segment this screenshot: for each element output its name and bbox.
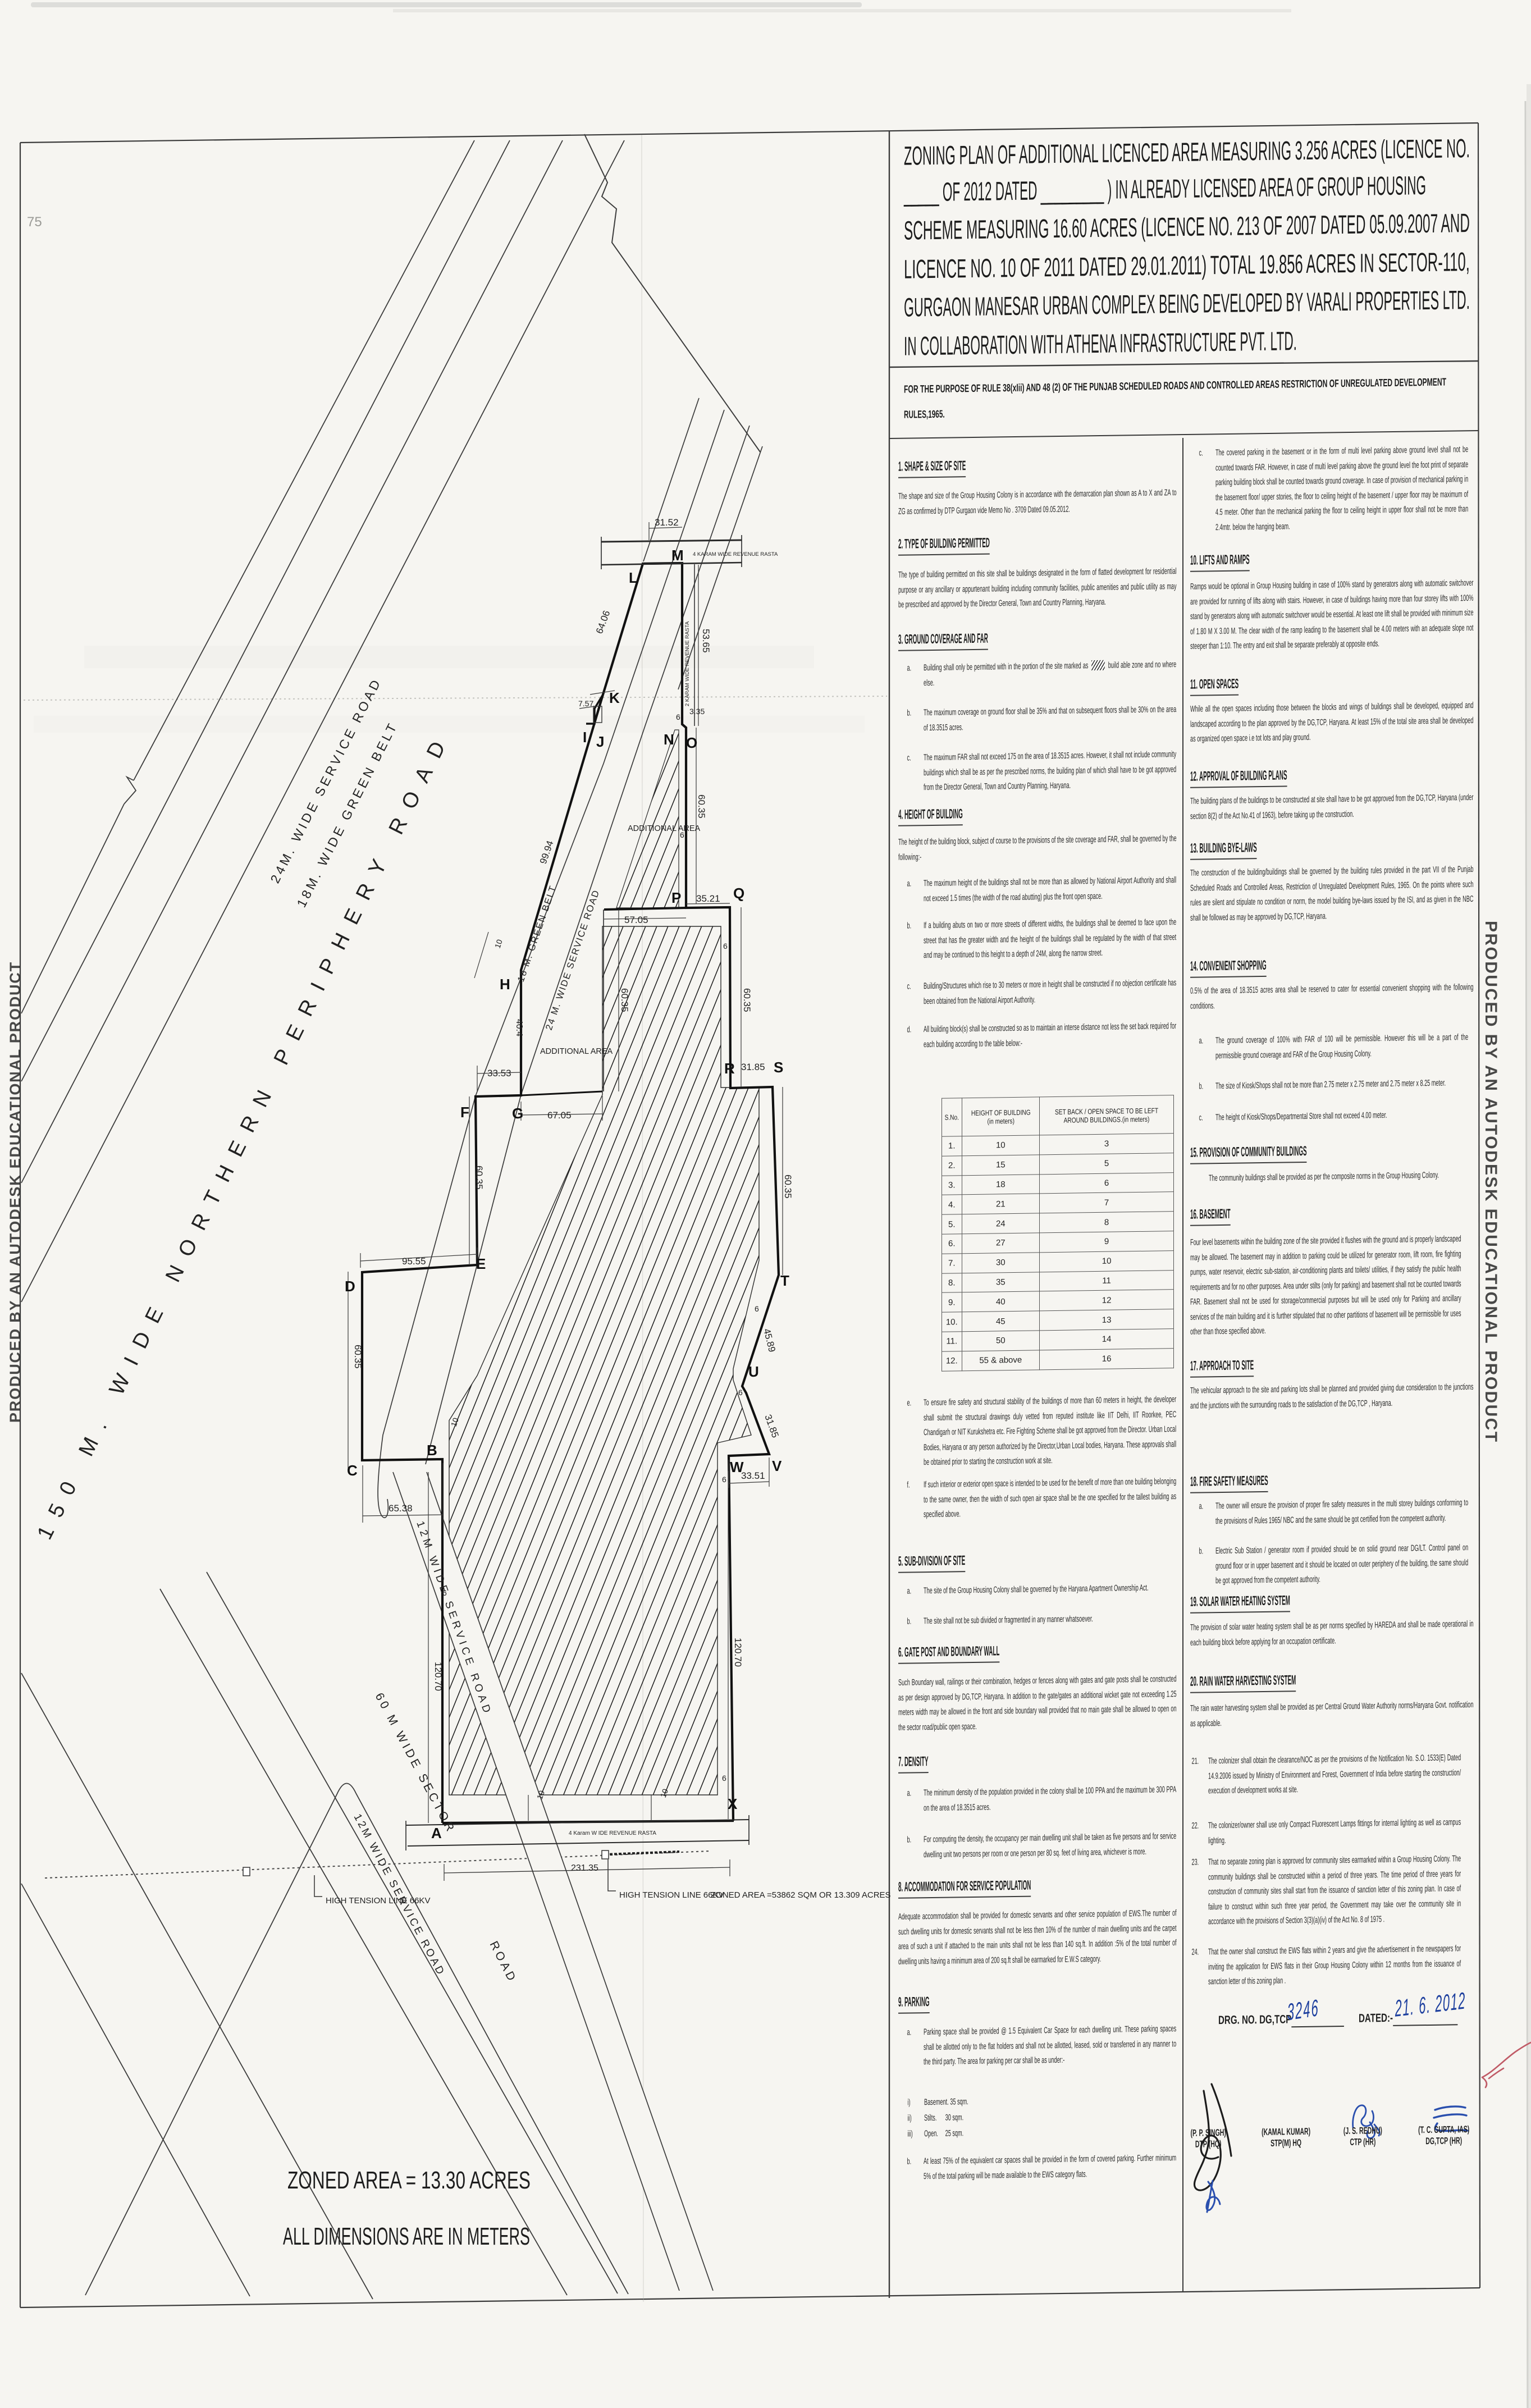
svg-text:ADDITIONAL AREA: ADDITIONAL AREA [628,824,701,833]
svg-text:6: 6 [680,830,684,839]
svg-text:60.35: 60.35 [353,1345,363,1369]
svg-text:10: 10 [449,1417,460,1428]
svg-text:PRODUCED BY AN AUTODESK EDUCAT: PRODUCED BY AN AUTODESK EDUCATIONAL PROD… [1482,921,1500,1443]
svg-text:67.05: 67.05 [547,1110,572,1121]
svg-text:S: S [774,1059,783,1076]
svg-text:57.05: 57.05 [624,915,648,925]
svg-text:ADDITIONAL AREA: ADDITIONAL AREA [540,1047,613,1056]
svg-text:D: D [345,1278,355,1295]
svg-text:A: A [431,1825,442,1842]
svg-text:150 M. WIDE NORTHERN PERIPH: 150 M. WIDE NORTHERN PERIPHERY ROAD [33,726,456,1543]
svg-text:2 KARAM WIDE REVENUE RASTA: 2 KARAM WIDE REVENUE RASTA [684,621,691,706]
svg-text:33.53: 33.53 [487,1068,511,1079]
svg-text:33.51: 33.51 [741,1470,765,1481]
svg-text:L: L [629,569,638,586]
svg-text:10: 10 [535,1789,546,1801]
svg-text:U: U [748,1363,759,1380]
svg-text:G: G [512,1105,523,1122]
svg-text:J: J [596,733,604,750]
svg-text:60.35: 60.35 [742,988,752,1012]
svg-text:N: N [664,731,674,748]
svg-text:P: P [671,889,681,906]
svg-text:ZONED AREA = 13.30 ACRES: ZONED AREA = 13.30 ACRES [287,2167,531,2194]
svg-text:6: 6 [722,1475,726,1484]
svg-text:231.35: 231.35 [571,1863,598,1873]
svg-text:6: 6 [676,712,680,721]
svg-text:6: 6 [722,1774,726,1783]
svg-text:ROAD: ROAD [487,1939,519,1985]
svg-text:45.89: 45.89 [761,1327,778,1353]
svg-text:6: 6 [442,1588,447,1597]
svg-text:60.35: 60.35 [619,988,630,1012]
svg-text:10: 10 [493,938,504,949]
svg-text:H: H [500,976,510,993]
svg-text:C: C [347,1462,358,1479]
svg-text:4 Karam W IDE REVENUE RASTA: 4 Karam W IDE REVENUE RASTA [569,1830,656,1836]
svg-text:Q: Q [733,885,744,902]
svg-text:12M WIDE SERVICE ROAD: 12M WIDE SERVICE ROAD [414,1520,493,1717]
svg-text:31.52: 31.52 [655,517,679,528]
svg-text:M: M [671,547,684,564]
svg-text:HIGH TENSION LINE 66KV: HIGH TENSION LINE 66KV [619,1890,724,1900]
svg-text:HIGH TENSION LINE 66KV: HIGH TENSION LINE 66KV [326,1896,430,1906]
svg-text:V: V [772,1457,782,1474]
svg-text:60 M WIDE SECTOR: 60 M WIDE SECTOR [373,1691,458,1836]
svg-text:35.21: 35.21 [696,893,720,904]
svg-text:24 M. WIDE SERVICE ROAD: 24 M. WIDE SERVICE ROAD [544,888,602,1031]
svg-text:53.65: 53.65 [701,629,711,653]
svg-text:60.35: 60.35 [783,1175,793,1199]
svg-text:120.70: 120.70 [733,1638,743,1667]
svg-text:K: K [609,689,620,706]
svg-text:ALL DIMENSIONS ARE IN METERS: ALL DIMENSIONS ARE IN METERS [283,2223,530,2250]
svg-text:PRODUCED BY AN AUTODESK EDUCAT: PRODUCED BY AN AUTODESK EDUCATIONAL PROD… [7,961,24,1423]
svg-text:64.06: 64.06 [594,609,612,635]
svg-text:E: E [476,1255,486,1272]
svg-text:31.85: 31.85 [741,1062,765,1072]
svg-text:60.35: 60.35 [696,794,707,819]
svg-text:6: 6 [755,1304,759,1313]
svg-text:10: 10 [659,1788,670,1799]
svg-text:120.70: 120.70 [433,1662,444,1691]
svg-text:F: F [460,1104,469,1121]
svg-text:99.94: 99.94 [538,839,556,865]
svg-text:6: 6 [723,942,728,951]
svg-text:40.4: 40.4 [514,1019,524,1036]
svg-text:7.57: 7.57 [578,699,593,708]
svg-text:4 KARAM WIDE REVENUE RASTA: 4 KARAM WIDE REVENUE RASTA [693,551,778,558]
svg-text:O: O [686,734,697,751]
svg-text:95.55: 95.55 [402,1256,426,1267]
svg-text:60.35: 60.35 [474,1166,485,1190]
svg-text:31.85: 31.85 [762,1413,780,1439]
svg-text:X: X [728,1795,738,1812]
svg-text:65.38: 65.38 [389,1503,413,1514]
svg-text:18 M. GREEN BELT: 18 M. GREEN BELT [516,884,559,983]
svg-text:ZONED AREA =53862 SQM OR 13.30: ZONED AREA =53862 SQM OR 13.309 ACRES [711,1890,891,1900]
svg-text:6: 6 [738,1388,743,1397]
svg-text:T: T [780,1272,789,1289]
svg-text:R: R [724,1060,735,1077]
svg-text:I: I [583,729,587,746]
svg-text:B: B [427,1442,437,1459]
svg-text:3.35: 3.35 [689,707,705,716]
